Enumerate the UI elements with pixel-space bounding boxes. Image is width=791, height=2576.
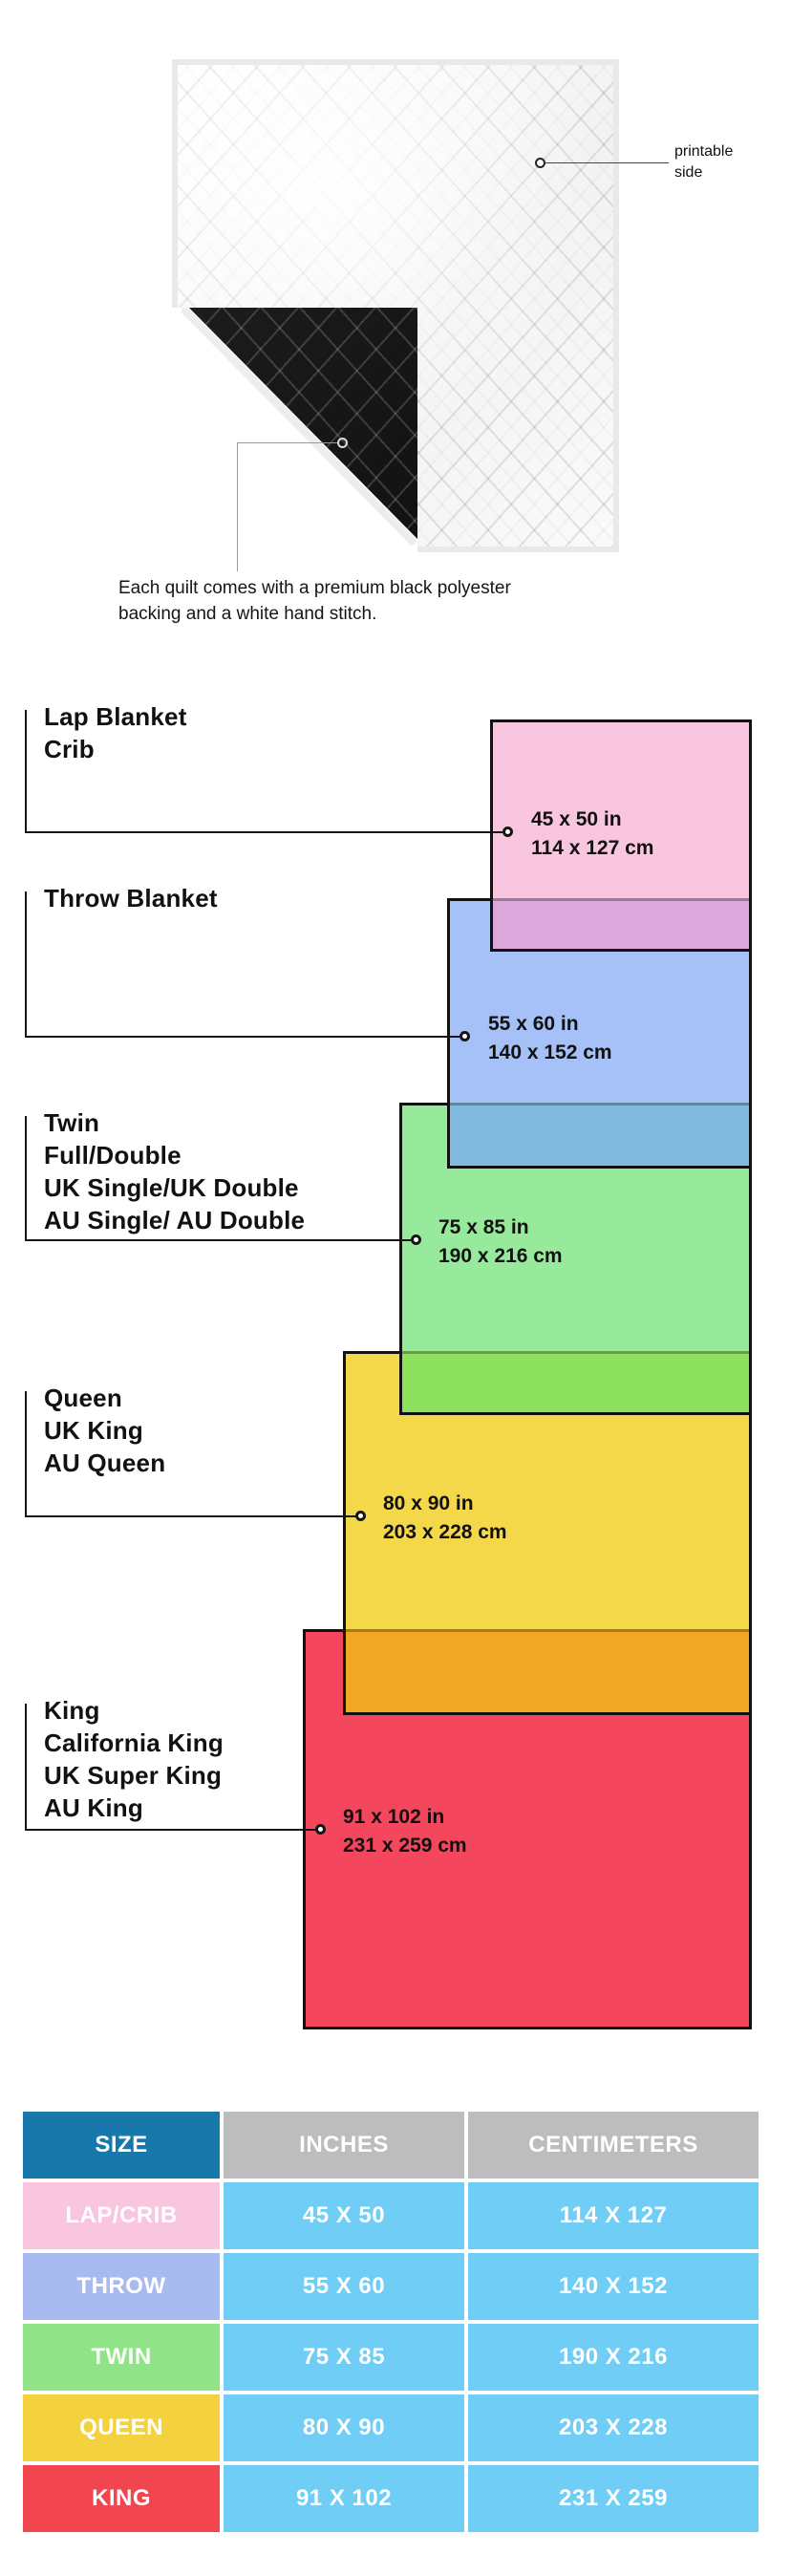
row-inches: 55 X 60 (224, 2253, 464, 2320)
king-dimensions-cm: 231 x 259 cm (343, 1832, 467, 1860)
row-label: LAP/CRIB (23, 2182, 220, 2249)
table-row-lap: LAP/CRIB 45 X 50 114 X 127 (23, 2182, 759, 2249)
row-inches: 91 X 102 (224, 2465, 464, 2532)
throw-callout-line-v (25, 891, 27, 1037)
row-cm: 114 X 127 (468, 2182, 759, 2249)
row-label: KING (23, 2465, 220, 2532)
row-cm: 231 X 259 (468, 2465, 759, 2532)
backing-caption: Each quilt comes with a premium black po… (118, 575, 511, 627)
twin-label-line: Full/Double (44, 1139, 305, 1171)
twin-dimensions: 75 x 85 in 190 x 216 cm (438, 1213, 563, 1271)
backing-caption-line1: Each quilt comes with a premium black po… (118, 575, 511, 601)
backing-annotation-line-h (237, 442, 337, 443)
row-cm: 190 X 216 (468, 2324, 759, 2391)
throw-callout-line-h (25, 1036, 460, 1038)
quilt-product-image (172, 59, 619, 552)
printable-side-label-line2: side (674, 162, 733, 183)
size-table-header-row: SIZE INCHES CENTIMETERS (23, 2112, 759, 2179)
printable-side-label-line1: printable (674, 141, 733, 162)
lap-section-labels: Lap Blanket Crib (44, 700, 187, 765)
queen-callout-line-v (25, 1391, 27, 1517)
printable-side-annotation-line (545, 162, 669, 163)
row-inches: 75 X 85 (224, 2324, 464, 2391)
header-inches: INCHES (224, 2112, 464, 2179)
throw-dimensions-cm: 140 x 152 cm (488, 1039, 612, 1067)
lap-callout-marker-icon (502, 826, 513, 837)
king-section-labels: King California King UK Super King AU Ki… (44, 1694, 224, 1824)
size-table: SIZE INCHES CENTIMETERS LAP/CRIB 45 X 50… (23, 2112, 759, 2532)
king-label-line: AU King (44, 1792, 224, 1824)
king-label-line: UK Super King (44, 1759, 224, 1792)
table-row-throw: THROW 55 X 60 140 X 152 (23, 2253, 759, 2320)
throw-callout-marker-icon (460, 1031, 470, 1041)
lap-dimensions-in: 45 x 50 in (531, 805, 653, 834)
lap-callout-line-h (25, 831, 502, 833)
printable-side-label: printable side (674, 141, 733, 183)
twin-label-line: UK Single/UK Double (44, 1171, 305, 1204)
table-row-twin: TWIN 75 X 85 190 X 216 (23, 2324, 759, 2391)
queen-twin-overlap (402, 1351, 749, 1415)
header-centimeters: CENTIMETERS (468, 2112, 759, 2179)
twin-label-line: Twin (44, 1106, 305, 1139)
row-label: QUEEN (23, 2394, 220, 2461)
twin-callout-line-v (25, 1116, 27, 1241)
queen-callout-marker-icon (355, 1511, 366, 1521)
row-label: TWIN (23, 2324, 220, 2391)
row-inches: 45 X 50 (224, 2182, 464, 2249)
printable-side-marker-icon (535, 158, 545, 168)
queen-label-line: Queen (44, 1382, 165, 1414)
queen-label-line: AU Queen (44, 1447, 165, 1479)
king-dimensions: 91 x 102 in 231 x 259 cm (343, 1803, 467, 1860)
twin-section-labels: Twin Full/Double UK Single/UK Double AU … (44, 1106, 305, 1236)
twin-label-line: AU Single/ AU Double (44, 1204, 305, 1236)
lap-label-line: Lap Blanket (44, 700, 187, 733)
king-callout-marker-icon (315, 1824, 326, 1835)
queen-label-line: UK King (44, 1414, 165, 1447)
queen-callout-line-h (25, 1515, 356, 1517)
row-inches: 80 X 90 (224, 2394, 464, 2461)
lap-dimensions-cm: 114 x 127 cm (531, 834, 653, 863)
header-size: SIZE (23, 2112, 220, 2179)
throw-label-line: Throw Blanket (44, 882, 218, 914)
row-cm: 140 X 152 (468, 2253, 759, 2320)
throw-dimensions: 55 x 60 in 140 x 152 cm (488, 1010, 612, 1067)
king-callout-line-v (25, 1704, 27, 1831)
backing-annotation-line-v (237, 442, 238, 571)
king-dimensions-in: 91 x 102 in (343, 1803, 467, 1832)
king-queen-overlap (346, 1629, 749, 1715)
table-row-queen: QUEEN 80 X 90 203 X 228 (23, 2394, 759, 2461)
twin-dimensions-cm: 190 x 216 cm (438, 1242, 563, 1271)
lap-callout-line-v (25, 710, 27, 832)
lap-dimensions: 45 x 50 in 114 x 127 cm (531, 805, 653, 863)
table-row-king: KING 91 X 102 231 X 259 (23, 2465, 759, 2532)
throw-dimensions-in: 55 x 60 in (488, 1010, 612, 1039)
queen-dimensions-cm: 203 x 228 cm (383, 1518, 507, 1547)
backing-marker-icon (337, 438, 348, 448)
twin-callout-line-h (25, 1239, 412, 1241)
lap-label-line: Crib (44, 733, 187, 765)
twin-dimensions-in: 75 x 85 in (438, 1213, 563, 1242)
king-label-line: California King (44, 1727, 224, 1759)
queen-dimensions: 80 x 90 in 203 x 228 cm (383, 1490, 507, 1547)
king-callout-line-h (25, 1829, 316, 1831)
queen-dimensions-in: 80 x 90 in (383, 1490, 507, 1518)
throw-lap-overlap (493, 898, 749, 952)
backing-caption-line2: backing and a white hand stitch. (118, 601, 511, 627)
king-label-line: King (44, 1694, 224, 1727)
row-label: THROW (23, 2253, 220, 2320)
twin-throw-overlap (450, 1103, 749, 1169)
throw-section-labels: Throw Blanket (44, 882, 218, 914)
row-cm: 203 X 228 (468, 2394, 759, 2461)
twin-callout-marker-icon (411, 1234, 421, 1245)
size-guide-infographic: printable side Each quilt comes with a p… (0, 0, 791, 2576)
queen-section-labels: Queen UK King AU Queen (44, 1382, 165, 1479)
